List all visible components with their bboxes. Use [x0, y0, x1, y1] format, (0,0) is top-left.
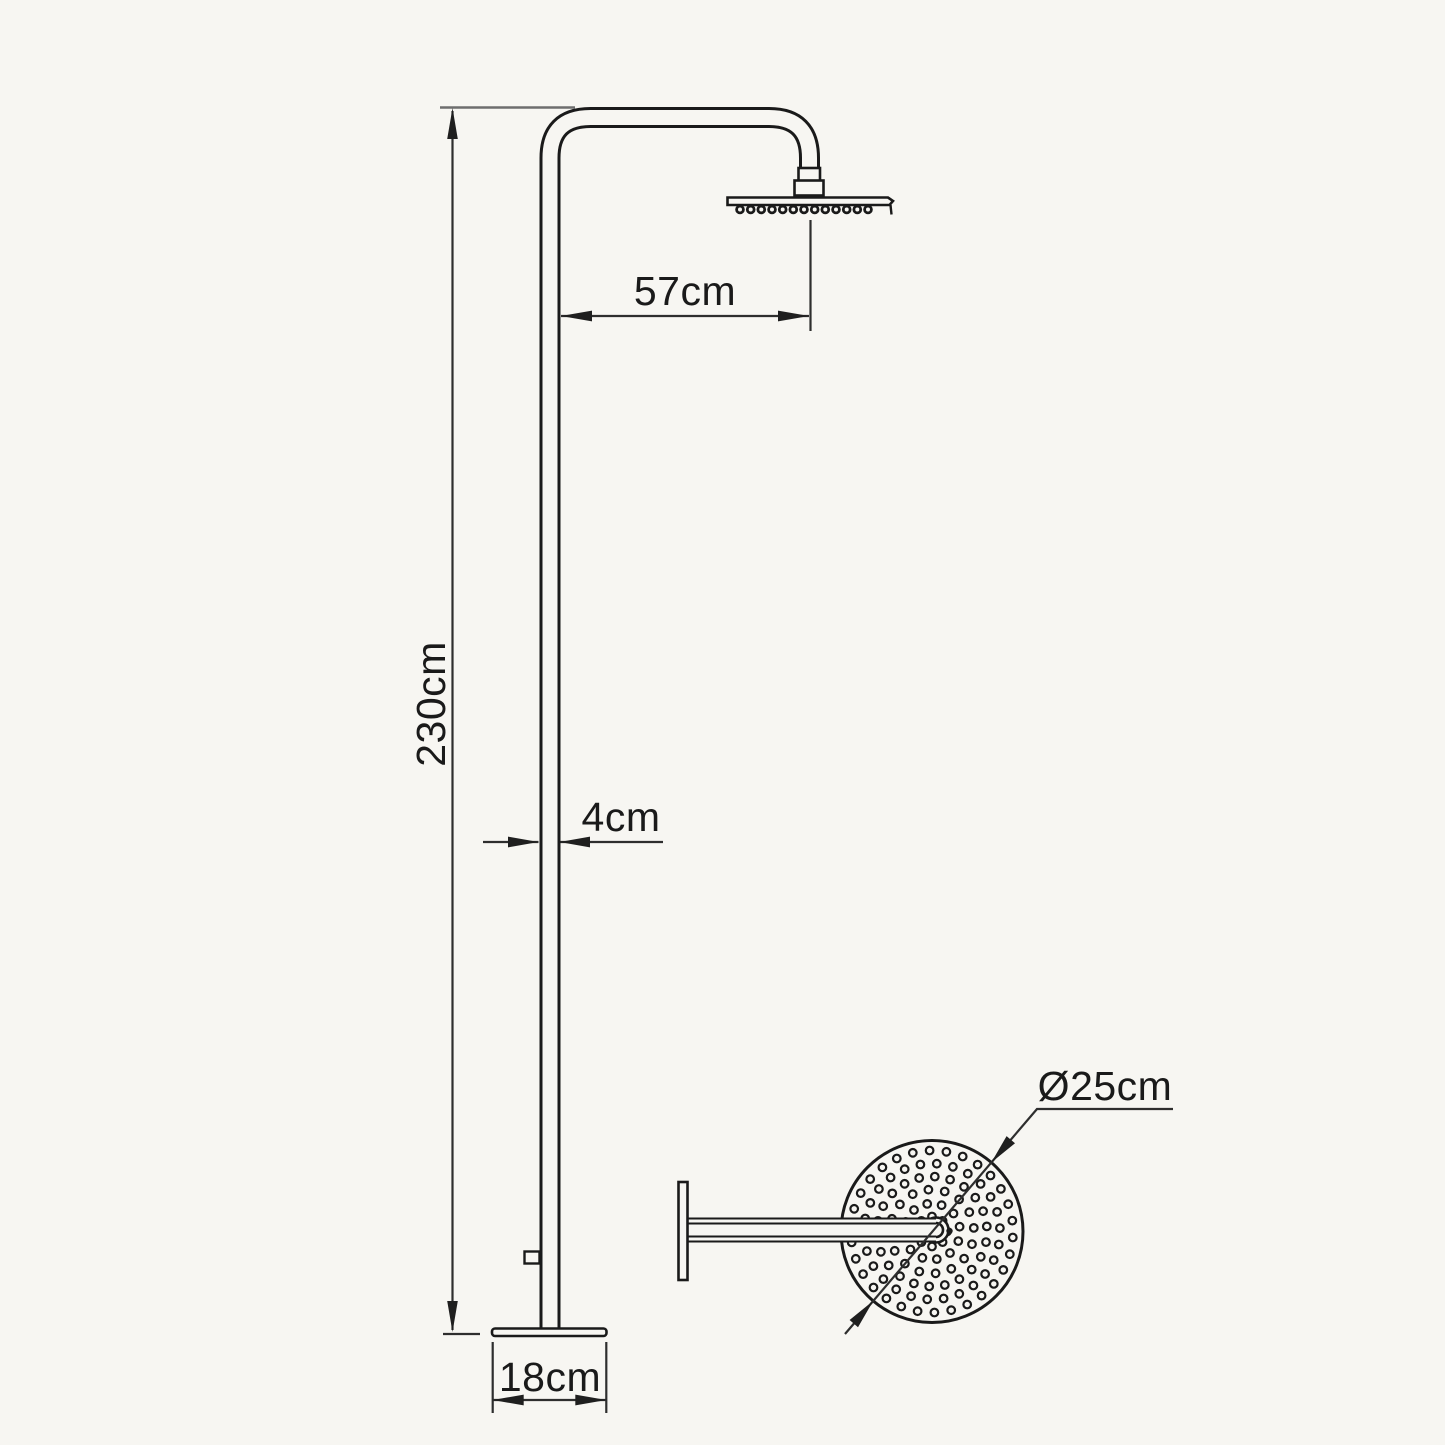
spray-hole — [960, 1183, 968, 1191]
nozzle-bump — [779, 206, 786, 213]
spray-hole — [885, 1262, 893, 1270]
spray-hole — [875, 1185, 883, 1193]
spray-hole — [949, 1163, 957, 1171]
spray-hole — [891, 1247, 899, 1255]
dimension-base-18: 18cm — [493, 1342, 607, 1413]
spray-hole — [959, 1153, 967, 1161]
technical-drawing-page: 230cm 57cm 4cm 18cm — [0, 0, 1445, 1445]
spray-hole — [867, 1199, 875, 1207]
spray-hole — [956, 1223, 964, 1231]
spray-hole — [866, 1175, 874, 1183]
spray-hole — [990, 1256, 998, 1264]
spray-hole — [859, 1270, 867, 1278]
spray-hole — [983, 1223, 991, 1231]
spray-hole — [964, 1170, 972, 1178]
spray-hole — [907, 1246, 915, 1254]
nozzle-bump — [822, 206, 829, 213]
spray-hole — [966, 1208, 974, 1216]
arm-cap-detail-dot — [946, 1228, 952, 1234]
spray-hole — [941, 1188, 949, 1196]
spray-hole — [972, 1194, 980, 1202]
spray-hole — [917, 1161, 925, 1169]
spray-hole — [910, 1206, 918, 1214]
spray-hole — [909, 1190, 917, 1198]
spray-hole — [982, 1238, 990, 1246]
spray-hole — [857, 1189, 865, 1197]
nozzle-bump — [843, 206, 850, 213]
drawing-canvas: 230cm 57cm 4cm 18cm — [0, 0, 1445, 1445]
spray-hole — [925, 1283, 933, 1291]
reach-dimension-label: 57cm — [634, 268, 736, 314]
spray-hole — [996, 1224, 1004, 1232]
spray-hole — [995, 1241, 1003, 1249]
nozzle-bump — [854, 206, 861, 213]
spray-hole — [948, 1265, 956, 1273]
dimension-pipe-4: 4cm — [483, 794, 663, 847]
nozzle-bump — [769, 206, 776, 213]
spray-hole — [919, 1254, 927, 1262]
spray-hole — [931, 1173, 939, 1181]
reach-arrow-left — [561, 311, 592, 322]
spray-hole — [990, 1280, 998, 1288]
spray-hole — [978, 1292, 986, 1300]
water-outlet-tab — [525, 1252, 540, 1264]
nozzle-bump — [833, 206, 840, 213]
spray-hole — [852, 1255, 860, 1263]
nozzle-bump — [801, 206, 808, 213]
spray-hole — [907, 1292, 915, 1300]
spray-hole — [879, 1202, 887, 1210]
base-plate — [492, 1329, 607, 1337]
shower-head-side-profile — [728, 198, 894, 206]
nozzle-bump — [790, 206, 797, 213]
spray-hole — [970, 1224, 978, 1232]
spray-hole — [889, 1190, 897, 1198]
spray-hole — [850, 1205, 858, 1213]
spray-hole — [914, 1307, 922, 1315]
spray-hole — [974, 1161, 982, 1169]
spray-hole — [960, 1255, 968, 1263]
spray-hole — [1000, 1266, 1008, 1274]
spray-hole — [943, 1148, 951, 1156]
nozzle-bump — [758, 206, 765, 213]
reach-arrow-right — [778, 311, 809, 322]
spray-hole — [997, 1185, 1005, 1193]
spray-hole — [947, 1306, 955, 1314]
spray-hole — [940, 1295, 948, 1303]
spray-hole — [925, 1186, 933, 1194]
nozzle-bump — [737, 206, 744, 213]
height-dimension-label: 230cm — [408, 641, 454, 767]
spray-hole — [928, 1243, 936, 1251]
spray-hole — [915, 1174, 923, 1182]
spray-hole — [892, 1286, 900, 1294]
spray-hole — [968, 1240, 976, 1248]
spray-hole — [941, 1281, 949, 1289]
dimension-reach-57: 57cm — [561, 220, 811, 331]
spray-hole — [1004, 1200, 1012, 1208]
head-rim-drip-tick — [891, 205, 892, 215]
spray-hole — [987, 1172, 995, 1180]
head-connector-upper — [799, 168, 821, 181]
height-arrow-up — [447, 108, 458, 139]
spray-hole — [946, 1176, 954, 1184]
base-dimension-label: 18cm — [499, 1354, 601, 1400]
spray-hole — [933, 1255, 941, 1263]
spray-hole — [893, 1155, 901, 1163]
spray-hole — [932, 1270, 940, 1278]
spray-hole — [916, 1268, 924, 1276]
spray-hole — [956, 1275, 964, 1283]
spray-hole — [977, 1253, 985, 1261]
spray-hole — [933, 1160, 941, 1168]
spray-hole — [955, 1237, 963, 1245]
spray-hole — [968, 1266, 976, 1274]
pipe-dimension-label: 4cm — [582, 794, 661, 840]
nozzle-bump — [865, 206, 872, 213]
spray-hole — [1006, 1250, 1014, 1258]
spray-hole — [910, 1280, 918, 1288]
spray-hole — [923, 1296, 931, 1304]
spray-hole — [887, 1174, 895, 1182]
spray-hole — [879, 1164, 887, 1172]
height-arrow-down — [447, 1301, 458, 1332]
side-view-nozzles — [737, 206, 872, 213]
spray-hole — [946, 1249, 954, 1257]
spray-hole — [987, 1193, 995, 1201]
spray-hole — [977, 1180, 985, 1188]
spray-hole — [909, 1149, 917, 1157]
pipe-arrow-left — [508, 837, 539, 848]
spray-hole — [970, 1282, 978, 1290]
spray-hole — [963, 1301, 971, 1309]
spray-hole — [923, 1200, 931, 1208]
spray-hole — [1009, 1217, 1017, 1225]
spray-hole — [863, 1247, 871, 1255]
nozzle-bump — [747, 206, 754, 213]
spray-hole — [993, 1208, 1001, 1216]
spray-hole — [938, 1201, 946, 1209]
spray-hole — [870, 1284, 878, 1292]
spray-hole — [870, 1262, 878, 1270]
spray-hole — [979, 1207, 987, 1215]
spray-hole — [880, 1275, 888, 1283]
wall-flange — [679, 1182, 688, 1280]
nozzle-bump — [811, 206, 818, 213]
spray-hole — [926, 1147, 934, 1155]
spray-hole — [981, 1270, 989, 1278]
spray-hole — [956, 1290, 964, 1298]
head-connector-lower — [795, 181, 824, 196]
spray-hole — [1009, 1234, 1017, 1242]
head-diameter-label: Ø25cm — [1038, 1063, 1173, 1109]
spray-hole — [898, 1303, 906, 1311]
spray-hole — [883, 1295, 891, 1303]
spray-hole — [901, 1180, 909, 1188]
spray-hole — [896, 1201, 904, 1209]
spray-hole — [931, 1309, 939, 1317]
top-view-shower-head — [679, 1141, 1024, 1323]
spray-hole — [877, 1248, 885, 1256]
spray-hole — [901, 1165, 909, 1173]
